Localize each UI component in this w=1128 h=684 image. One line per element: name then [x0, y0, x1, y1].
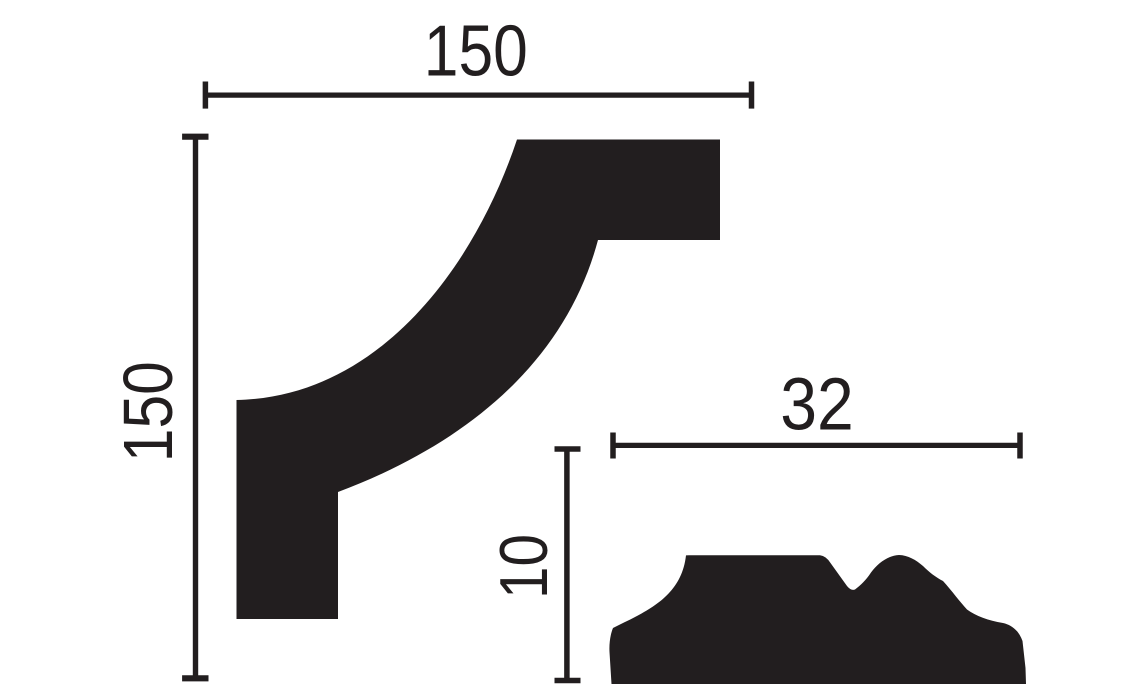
svg-text:10: 10	[486, 534, 562, 599]
svg-text:150: 150	[109, 361, 187, 462]
svg-text:150: 150	[424, 12, 528, 92]
svg-text:32: 32	[780, 363, 854, 446]
